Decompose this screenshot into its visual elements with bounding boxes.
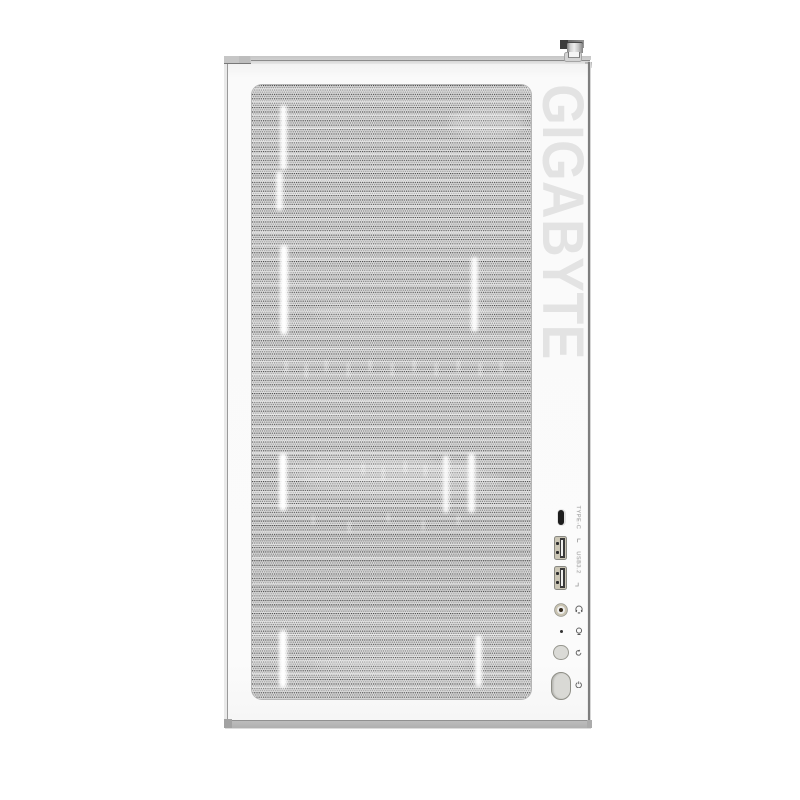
svg-text:USB3.2: USB3.2 <box>575 551 581 573</box>
svg-text:TYPE-C: TYPE-C <box>575 506 581 530</box>
